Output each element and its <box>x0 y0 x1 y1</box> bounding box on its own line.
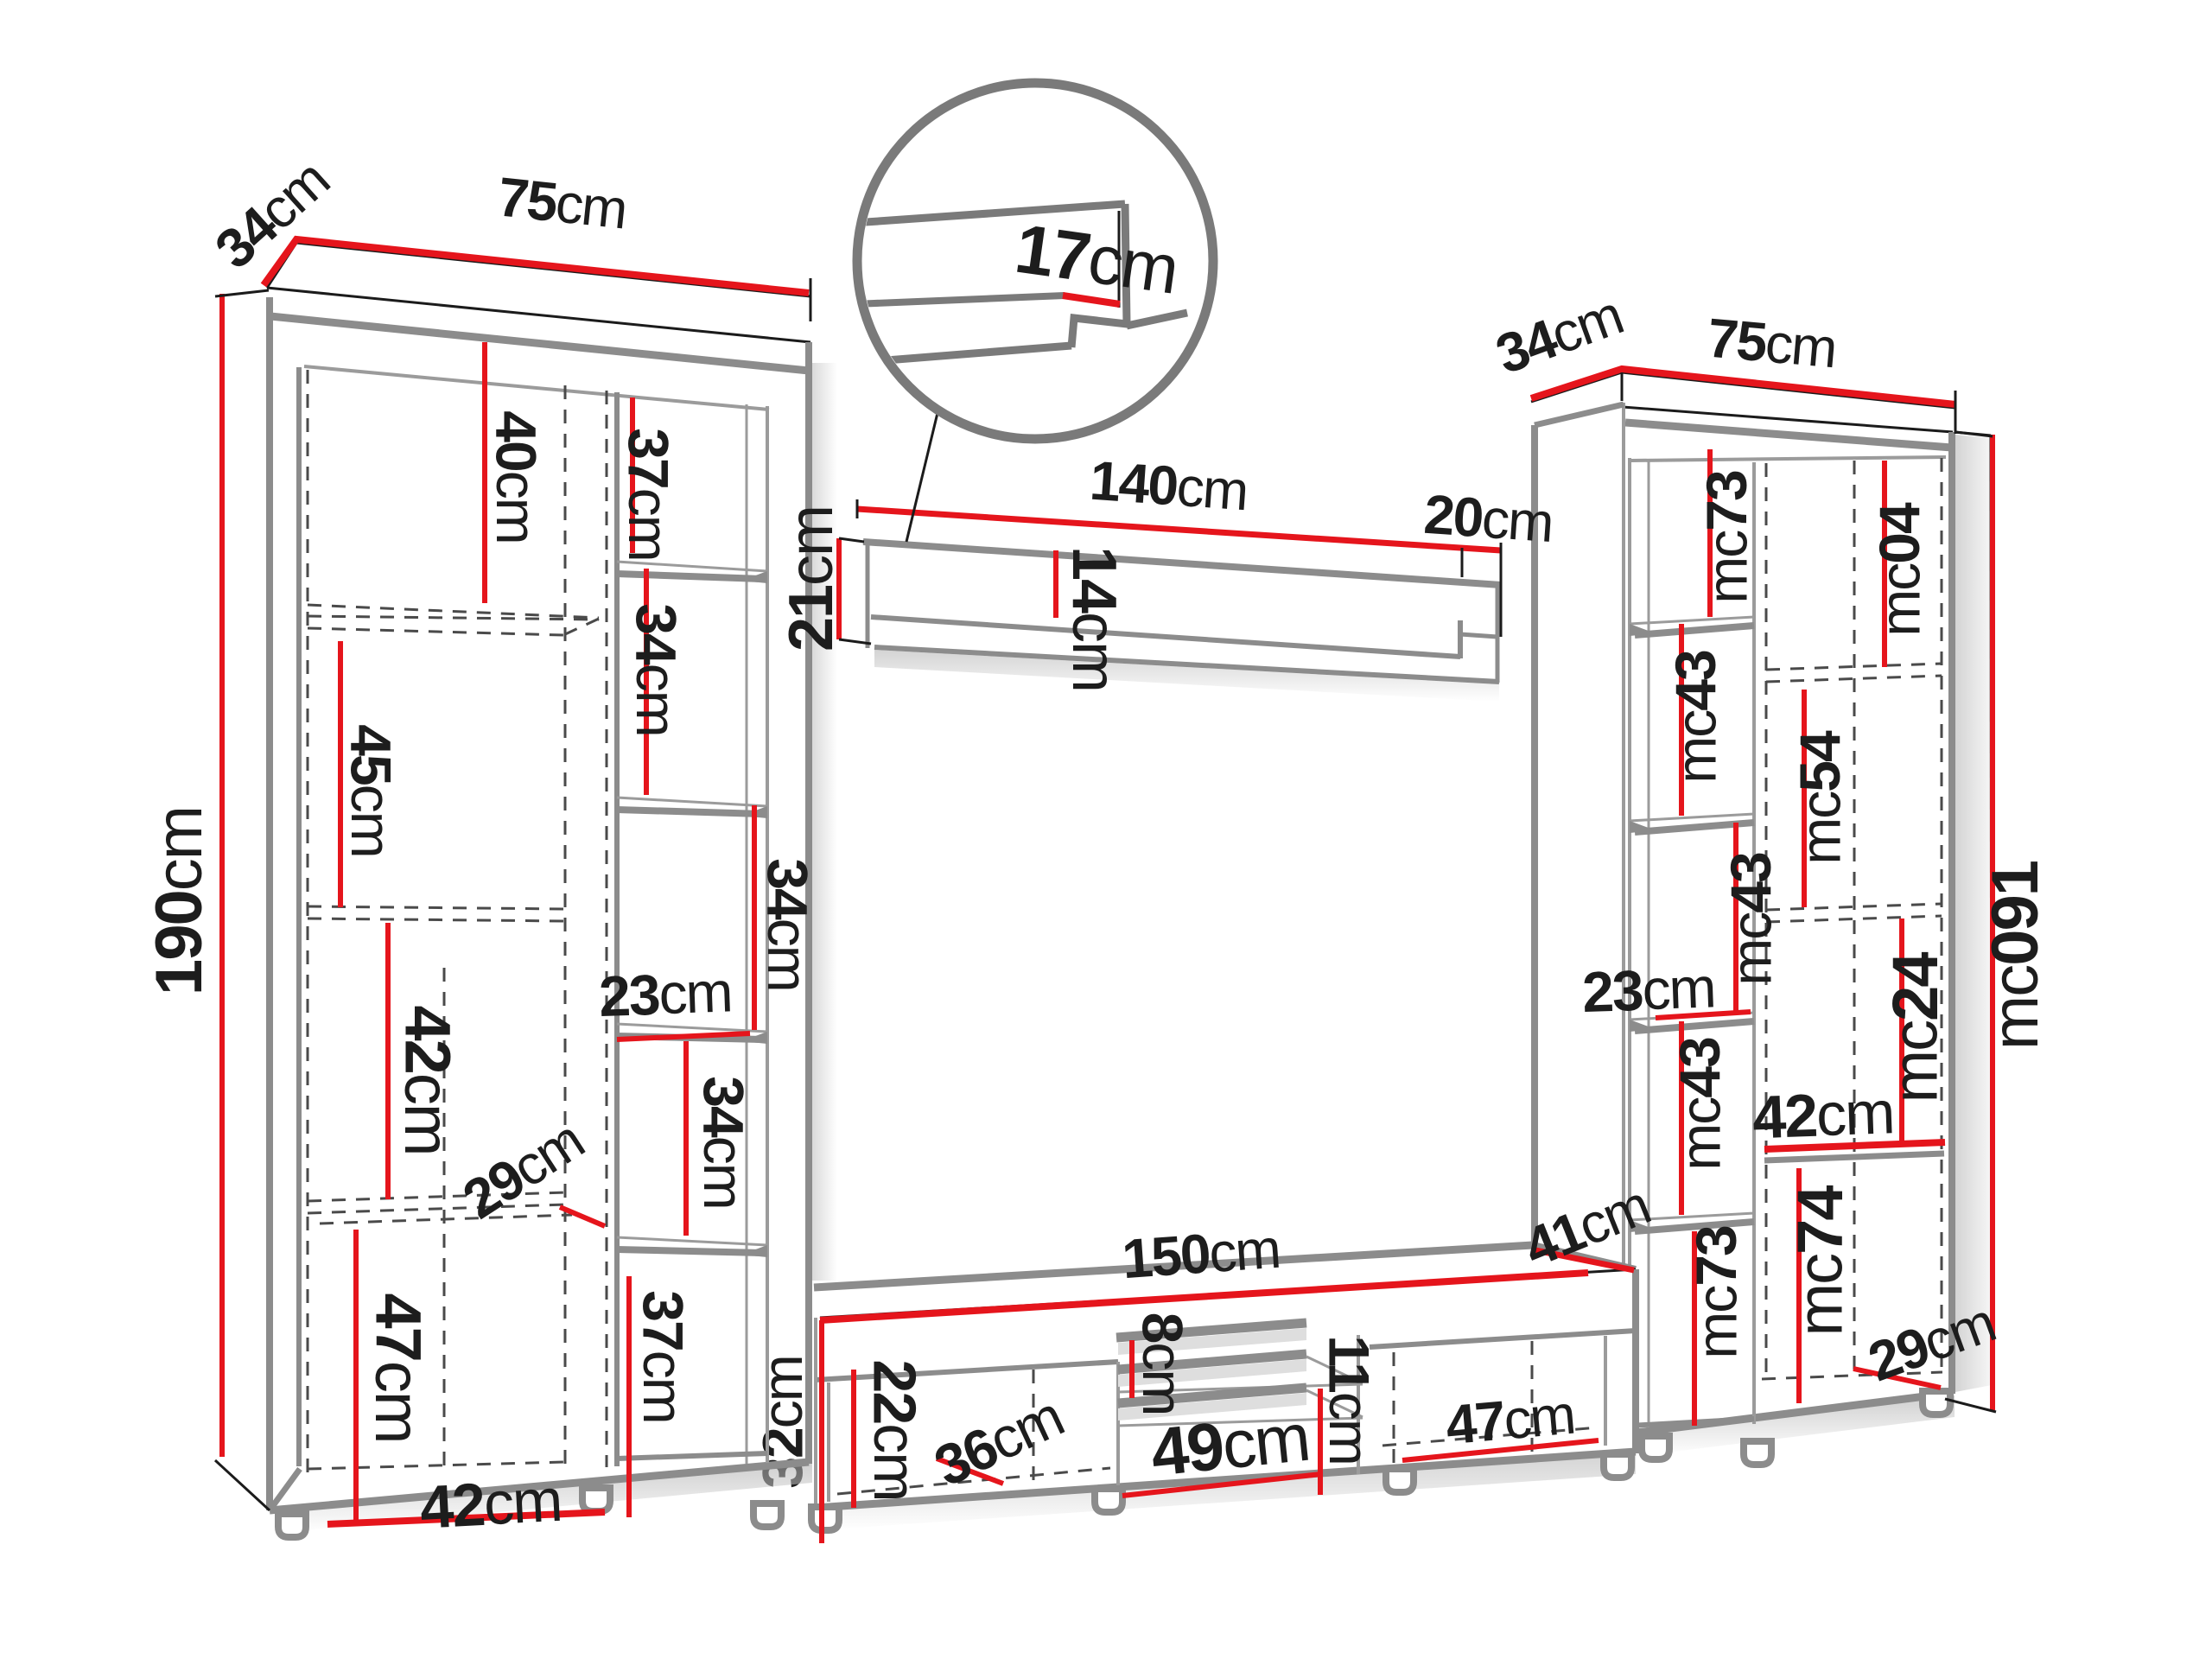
svg-text:34cm: 34cm <box>625 603 689 735</box>
svg-text:150cm: 150cm <box>1120 1217 1281 1291</box>
svg-text:mc54: mc54 <box>1788 730 1852 865</box>
svg-text:mc04: mc04 <box>1867 502 1931 637</box>
svg-text:75cm: 75cm <box>1705 307 1838 380</box>
svg-text:23cm: 23cm <box>598 960 733 1028</box>
svg-text:mc43: mc43 <box>1668 1038 1732 1171</box>
svg-text:mc73: mc73 <box>1684 1226 1748 1359</box>
svg-text:mc73: mc73 <box>1694 471 1758 604</box>
svg-text:47cm: 47cm <box>1443 1383 1576 1457</box>
svg-text:40cm: 40cm <box>485 410 549 543</box>
svg-text:47cm: 47cm <box>362 1294 434 1443</box>
svg-text:mc091: mc091 <box>1979 861 2052 1050</box>
svg-text:20cm: 20cm <box>1422 483 1554 554</box>
svg-text:42cm: 42cm <box>1751 1079 1895 1152</box>
svg-text:34cm: 34cm <box>756 858 820 990</box>
svg-text:8cm: 8cm <box>1131 1313 1195 1415</box>
svg-text:11cm: 11cm <box>1318 1335 1382 1465</box>
svg-text:mc43: mc43 <box>1719 853 1783 986</box>
svg-text:42cm: 42cm <box>418 1466 563 1541</box>
svg-text:22cm: 22cm <box>861 1359 929 1500</box>
svg-text:45cm: 45cm <box>340 724 404 856</box>
svg-text:42cm: 42cm <box>391 1006 463 1155</box>
svg-text:190cm: 190cm <box>143 807 216 995</box>
svg-text:mc74: mc74 <box>1784 1185 1856 1337</box>
svg-text:37cm: 37cm <box>617 428 681 560</box>
svg-text:37cm: 37cm <box>632 1290 696 1422</box>
svg-text:140cm: 140cm <box>1088 449 1249 523</box>
svg-text:23cm: 23cm <box>1581 956 1716 1024</box>
svg-text:21cm: 21cm <box>777 506 846 652</box>
svg-text:14cm: 14cm <box>1059 546 1128 691</box>
svg-text:34cm: 34cm <box>692 1076 756 1208</box>
svg-text:mc43: mc43 <box>1663 651 1727 784</box>
